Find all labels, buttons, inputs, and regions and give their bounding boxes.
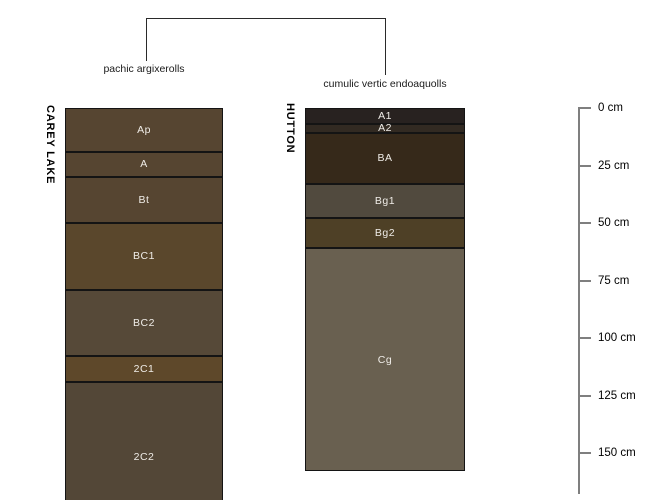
horizon-label-2C2: 2C2: [134, 452, 155, 463]
horizon-2C1: 2C1: [65, 356, 223, 381]
horizon-label-BC1: BC1: [133, 251, 155, 262]
profile-hutton: A1A2BABg1Bg2Cg: [305, 0, 465, 500]
depth-tick-150: [578, 452, 591, 454]
horizon-label-A1: A1: [378, 111, 392, 122]
soil-profile-figure: pachic argixerolls cumulic vertic endoaq…: [0, 0, 650, 500]
horizon-BA: BA: [305, 133, 465, 184]
horizon-label-Bg1: Bg1: [375, 196, 395, 207]
horizon-2C2: 2C2: [65, 382, 223, 500]
horizon-label-Ap: Ap: [137, 125, 151, 136]
profile-id-carey-lake: CAREY LAKE: [44, 105, 56, 184]
depth-tick-100: [578, 337, 591, 339]
horizon-label-Bt: Bt: [139, 195, 150, 206]
horizon-A2: A2: [305, 124, 465, 133]
horizon-A: A: [65, 152, 223, 177]
depth-tick-label-50: 50 cm: [598, 217, 629, 229]
horizon-Bt: Bt: [65, 177, 223, 223]
horizon-BC1: BC1: [65, 223, 223, 290]
depth-tick-label-0: 0 cm: [598, 102, 623, 114]
profile-carey-lake: ApABtBC1BC22C12C2: [65, 0, 223, 500]
depth-tick-125: [578, 395, 591, 397]
horizon-Bg2: Bg2: [305, 218, 465, 248]
depth-tick-label-150: 150 cm: [598, 447, 636, 459]
depth-tick-label-25: 25 cm: [598, 160, 629, 172]
horizon-label-BA: BA: [377, 153, 392, 164]
horizon-Bg1: Bg1: [305, 184, 465, 219]
depth-tick-0: [578, 107, 591, 109]
horizon-label-Bg2: Bg2: [375, 228, 395, 239]
depth-tick-50: [578, 222, 591, 224]
depth-tick-25: [578, 165, 591, 167]
horizon-label-BC2: BC2: [133, 318, 155, 329]
horizon-Cg: Cg: [305, 248, 465, 471]
depth-tick-75: [578, 280, 591, 282]
horizon-label-2C1: 2C1: [134, 364, 155, 375]
depth-tick-label-100: 100 cm: [598, 332, 636, 344]
horizon-Ap: Ap: [65, 108, 223, 152]
depth-tick-label-125: 125 cm: [598, 390, 636, 402]
horizon-label-Cg: Cg: [378, 355, 392, 366]
horizon-label-A: A: [140, 159, 148, 170]
profile-id-hutton: HUTTON: [284, 103, 296, 153]
horizon-BC2: BC2: [65, 290, 223, 357]
depth-tick-label-75: 75 cm: [598, 275, 629, 287]
